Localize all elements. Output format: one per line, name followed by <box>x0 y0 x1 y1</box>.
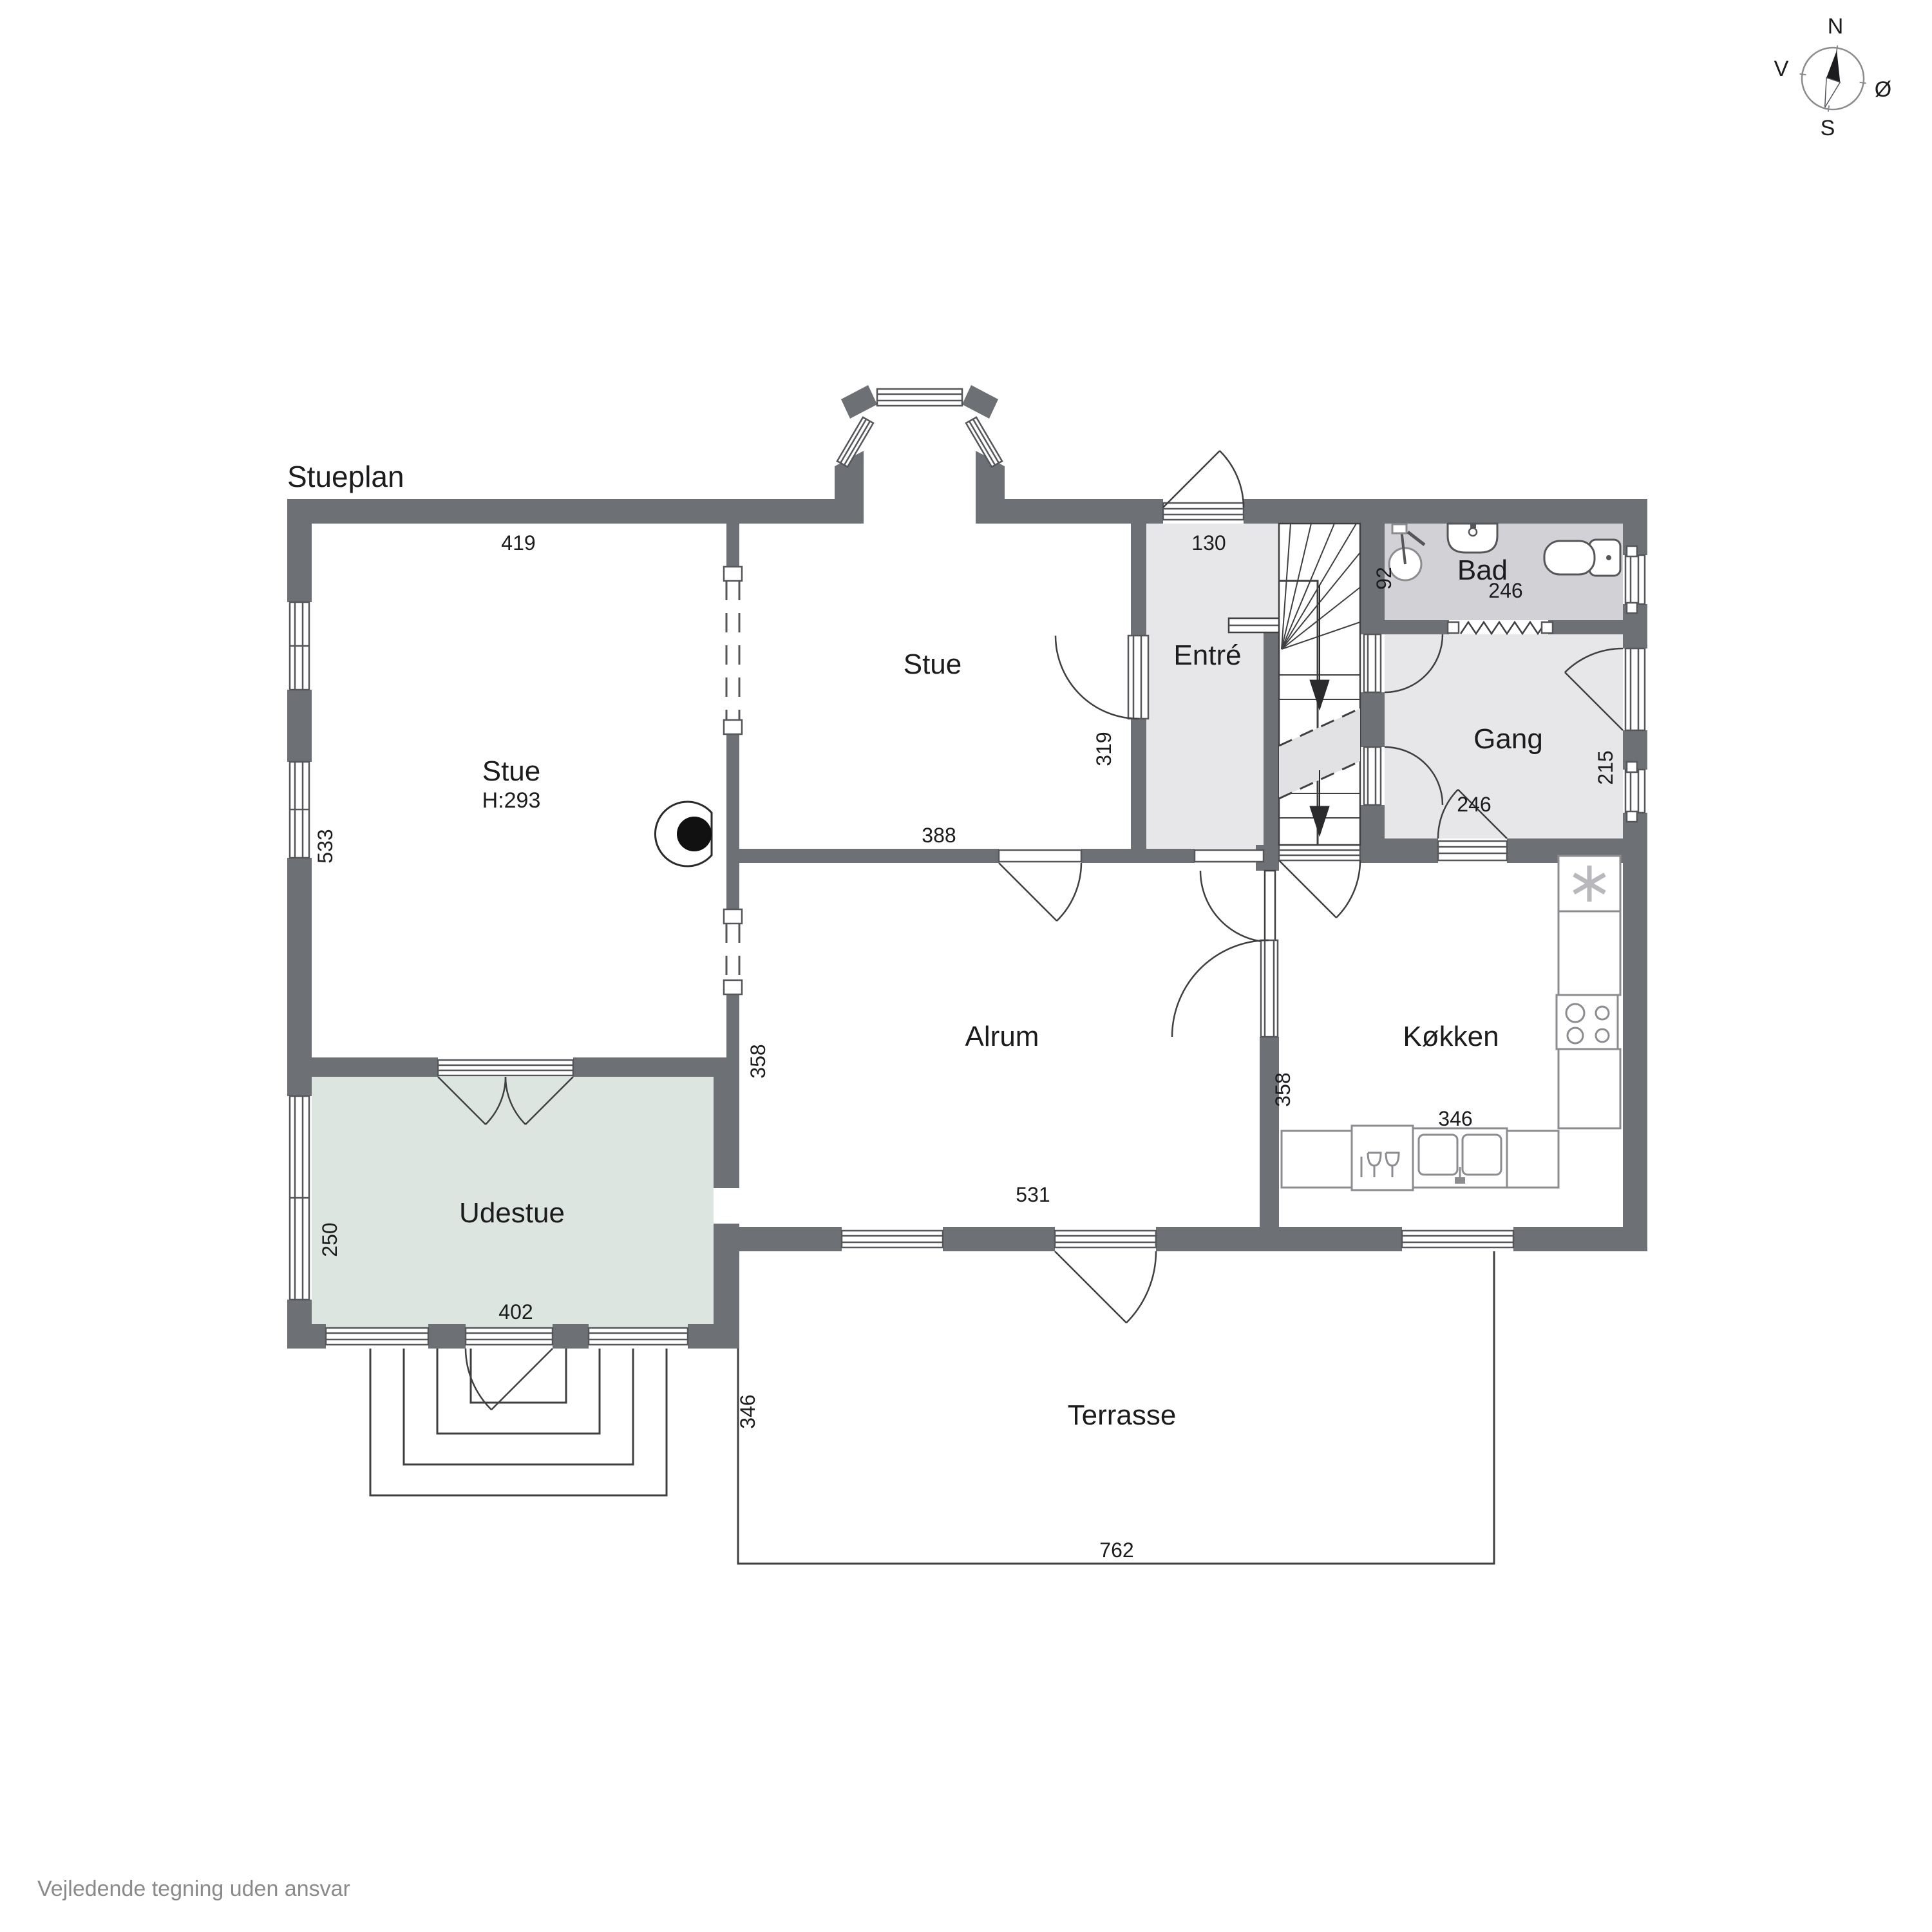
room-label-entre: Entré <box>1173 639 1241 671</box>
entre-stue-door <box>1056 636 1148 719</box>
page-title: Stueplan <box>287 460 404 493</box>
window <box>1625 546 1645 613</box>
dim-stue-left-width: 419 <box>501 531 535 554</box>
sink-icon <box>1448 524 1497 553</box>
dim-alrum-width: 531 <box>1016 1183 1050 1206</box>
udestue-steps-door <box>466 1328 553 1410</box>
dim-entre-width: 130 <box>1191 531 1226 554</box>
stove-flue <box>677 817 712 851</box>
dim-gang-depth: 215 <box>1594 750 1617 784</box>
window <box>290 762 309 858</box>
alrum-kokken-door <box>1172 940 1278 1037</box>
dim-terrasse-width: 762 <box>1099 1539 1133 1562</box>
room-height-note: H:293 <box>482 788 541 813</box>
entre-front-door <box>1163 451 1244 520</box>
dim-stue-mid-width: 388 <box>922 824 956 847</box>
stove-icon <box>1557 995 1618 1049</box>
floorplan-canvas: N S Ø V Stueplan Vejledende tegning uden… <box>0 0 1932 1932</box>
entre-floor <box>1146 524 1279 863</box>
window <box>589 1328 688 1345</box>
room-label-gang: Gang <box>1473 723 1543 755</box>
dim-udestue-depth: 250 <box>318 1222 341 1256</box>
staircase[interactable] <box>1279 524 1360 845</box>
room-label-kokken: Køkken <box>1403 1021 1499 1052</box>
room-label-udestue: Udestue <box>459 1197 565 1229</box>
compass-south-label: S <box>1821 116 1835 140</box>
dim-bad-width: 246 <box>1488 579 1522 602</box>
toilet-icon <box>1544 540 1620 576</box>
stair-kokken-door <box>1279 845 1360 918</box>
kitchen-sink-icon <box>1413 1128 1507 1188</box>
room-label-alrum: Alrum <box>965 1021 1039 1052</box>
window <box>1402 1231 1513 1247</box>
dim-gang-width: 246 <box>1457 793 1491 816</box>
window <box>842 1231 943 1247</box>
window <box>326 1328 428 1345</box>
bay-window-top-pane <box>877 389 962 406</box>
dim-udestue-width: 402 <box>498 1300 533 1323</box>
compass-north-label: N <box>1828 14 1844 39</box>
dim-stue-mid-depth: 319 <box>1092 732 1115 766</box>
room-label-stue-mid: Stue <box>904 649 962 680</box>
compass-east-label: Ø <box>1875 77 1891 102</box>
stue-alrum-door <box>999 850 1081 921</box>
window <box>290 602 309 690</box>
dim-kokken-width: 346 <box>1438 1107 1472 1130</box>
compass-needle-icon <box>1795 41 1870 116</box>
understair-door <box>1229 618 1280 632</box>
wood-stove <box>655 802 712 866</box>
dim-kokken-depth: 358 <box>1271 1072 1294 1106</box>
compass: N S Ø V <box>1774 14 1892 140</box>
dim-stue-left-depth: 533 <box>314 829 337 863</box>
dim-bad-depth: 92 <box>1372 567 1396 590</box>
bad-folding-door <box>1448 622 1553 634</box>
room-label-stue-left: Stue <box>482 755 541 787</box>
room-label-terrasse: Terrasse <box>1068 1399 1177 1431</box>
dim-terrasse-depth: 346 <box>736 1394 759 1428</box>
bay-window <box>835 385 1005 524</box>
udestue-steps <box>370 1349 667 1495</box>
window <box>290 1096 309 1300</box>
compass-west-label: V <box>1774 57 1789 81</box>
dim-alrum-depth: 358 <box>746 1044 770 1078</box>
dishwasher-icon <box>1352 1126 1413 1190</box>
terrace-door <box>1055 1231 1156 1323</box>
window <box>1625 762 1645 822</box>
disclaimer-text: Vejledende tegning uden ansvar <box>37 1877 350 1901</box>
